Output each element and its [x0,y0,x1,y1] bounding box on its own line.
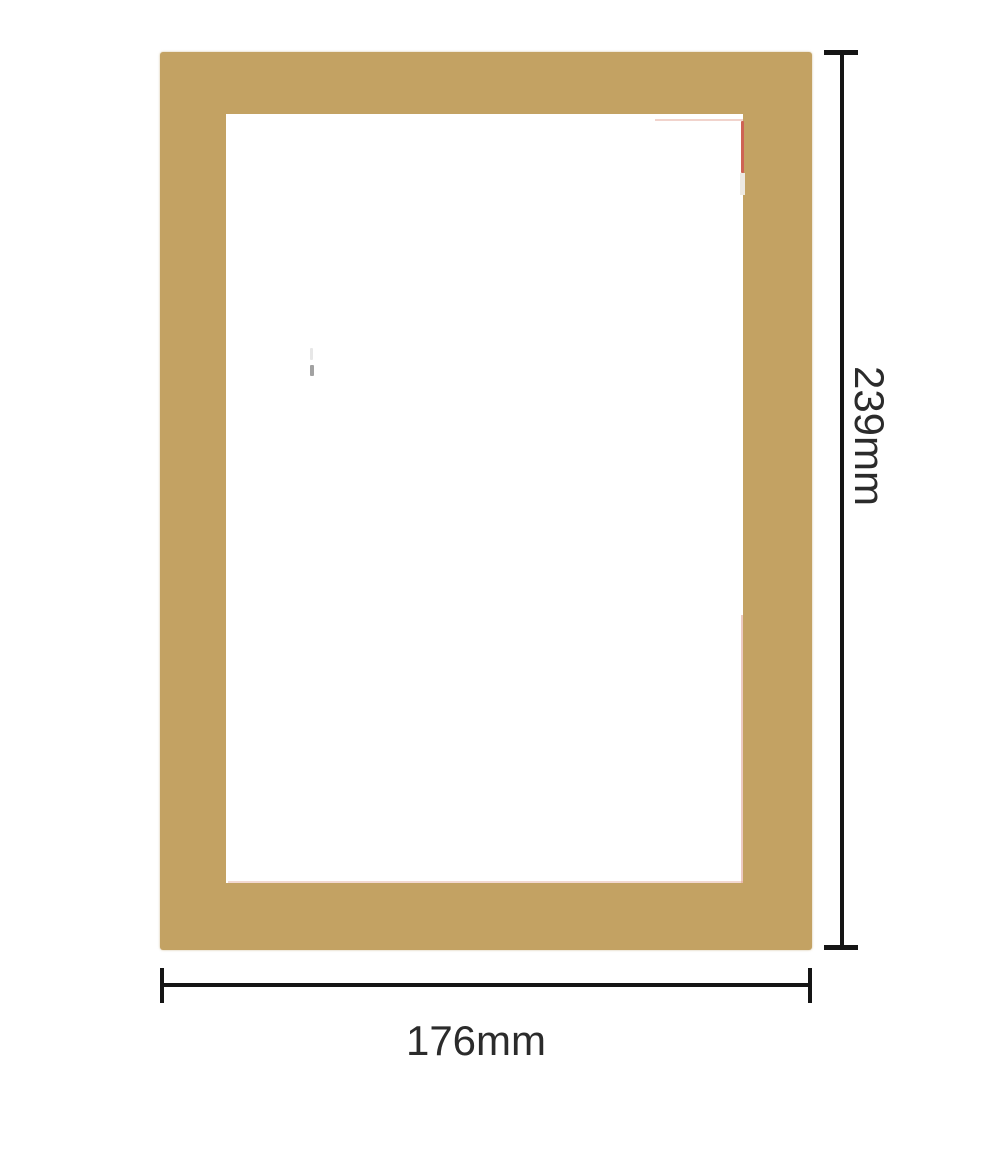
width-dimension-label: 176mm [376,1017,576,1065]
inner-edge-tint-bottom [228,881,743,883]
height-dimension-bottom-tick [824,945,858,950]
smudge-mark-light [310,348,313,360]
inner-edge-tint-top [655,119,743,121]
picture-frame-graphic [160,52,812,950]
inner-edge-red-mark [741,121,744,173]
height-dimension-label: 239mm [847,356,891,516]
dimension-diagram-canvas: 239mm 176mm [0,0,1000,1163]
width-dimension-right-tick [808,968,812,1003]
inner-edge-tint-right [741,615,743,883]
frame-window-opening [226,114,743,883]
height-dimension-line [840,52,844,948]
inner-edge-light-notch [740,173,745,195]
width-dimension-line [160,983,812,987]
smudge-mark-dark [310,365,314,376]
